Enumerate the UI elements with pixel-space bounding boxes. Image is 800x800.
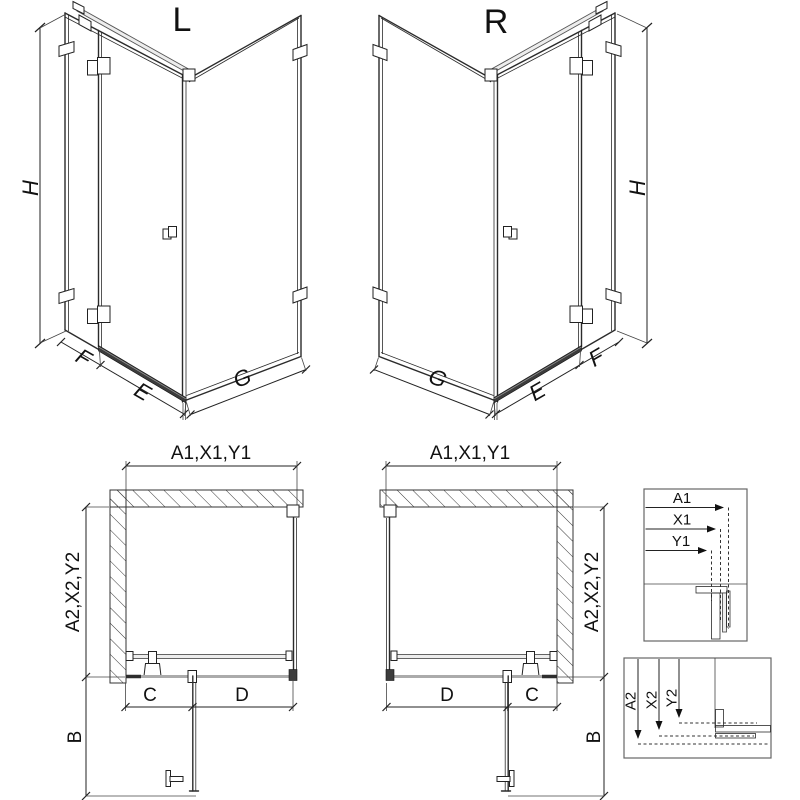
detail-label-a1: A1	[673, 490, 691, 507]
dimension-bottom: D C	[383, 683, 562, 711]
dim-label-e: E	[525, 377, 550, 406]
dim-label-b: B	[65, 731, 86, 744]
dimension-front: F E	[492, 338, 623, 418]
dim-label-g: G	[230, 363, 255, 393]
figure-iso-left: L	[18, 1, 310, 420]
dim-label-f: F	[72, 343, 97, 372]
door-handle	[163, 227, 177, 240]
dim-label-h: H	[625, 180, 650, 196]
detail-label-y1: Y1	[672, 533, 690, 550]
detail-box-depth: A2 X2 Y2	[623, 658, 772, 758]
detail-label-a2: A2	[623, 692, 640, 710]
dim-label-c: C	[143, 685, 157, 706]
door-hinge-top	[88, 58, 111, 76]
support-bar-plan	[391, 651, 557, 676]
dim-label-h: H	[18, 180, 43, 196]
variant-title-left: L	[173, 1, 192, 39]
support-bar-plan	[126, 651, 292, 676]
door-handle	[504, 227, 518, 240]
dim-label-c: C	[525, 685, 539, 706]
dim-label-f: F	[584, 343, 609, 372]
door-hinge-bottom	[88, 306, 111, 324]
figure-plan-left: A1,X1,Y1	[63, 443, 303, 800]
dim-label-e: E	[130, 377, 155, 406]
dim-label-b: B	[584, 731, 605, 744]
figure-plan-right: A1,X1,Y1	[380, 443, 608, 800]
door-hinge-top	[570, 58, 593, 76]
walls	[110, 490, 303, 683]
detail-box-width: A1 X1 Y1	[644, 489, 747, 641]
dim-label-depth: A2,X2,Y2	[582, 552, 603, 632]
open-door-plan	[166, 671, 199, 792]
diagram-canvas: L	[0, 0, 800, 800]
detail-label-x2: X2	[644, 691, 661, 709]
dim-label-depth: A2,X2,Y2	[63, 552, 84, 632]
walls	[380, 490, 573, 683]
detail-label-x1: X1	[673, 512, 691, 529]
dim-label-d: D	[235, 685, 249, 706]
detail-label-y2: Y2	[664, 689, 681, 707]
door-hinge-bottom	[570, 306, 593, 324]
technical-drawing-page: L	[0, 0, 800, 800]
dimension-bottom: C D	[122, 681, 298, 711]
open-door-plan	[497, 671, 514, 792]
dimension-front: F E	[57, 338, 188, 418]
dim-label-g: G	[425, 363, 450, 393]
dimension-swing: B	[508, 677, 608, 800]
variant-title-right: R	[484, 3, 509, 41]
dim-label-width: A1,X1,Y1	[430, 443, 510, 464]
figure-iso-right: R	[370, 2, 652, 421]
dimension-height: H	[617, 14, 652, 348]
dim-label-width: A1,X1,Y1	[171, 443, 251, 464]
dim-label-d: D	[440, 685, 454, 706]
